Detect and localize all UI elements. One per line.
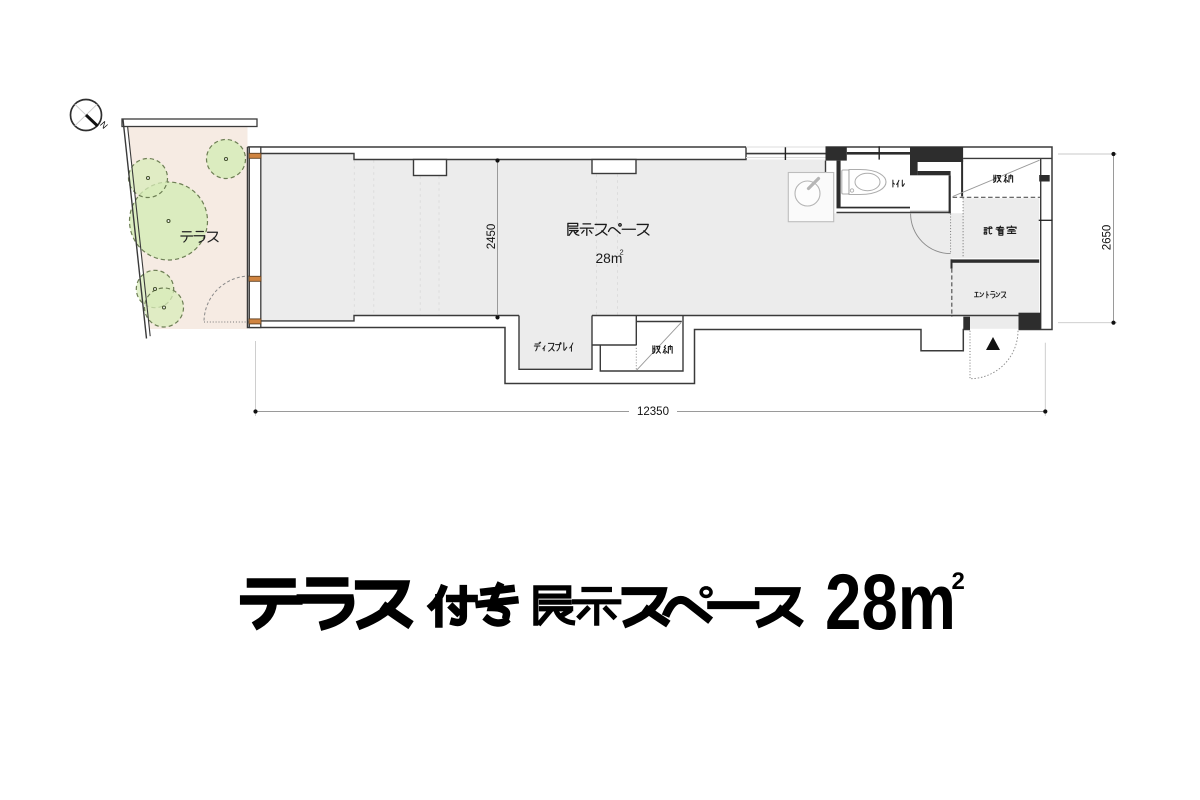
svg-text:12350: 12350 [637, 406, 669, 418]
svg-text:28m: 28m [825, 557, 956, 646]
svg-text:28m: 28m [596, 251, 623, 266]
svg-text:2: 2 [620, 248, 624, 257]
svg-text:2450: 2450 [486, 224, 498, 250]
svg-text:2650: 2650 [1102, 225, 1114, 251]
svg-text:2: 2 [952, 568, 965, 595]
